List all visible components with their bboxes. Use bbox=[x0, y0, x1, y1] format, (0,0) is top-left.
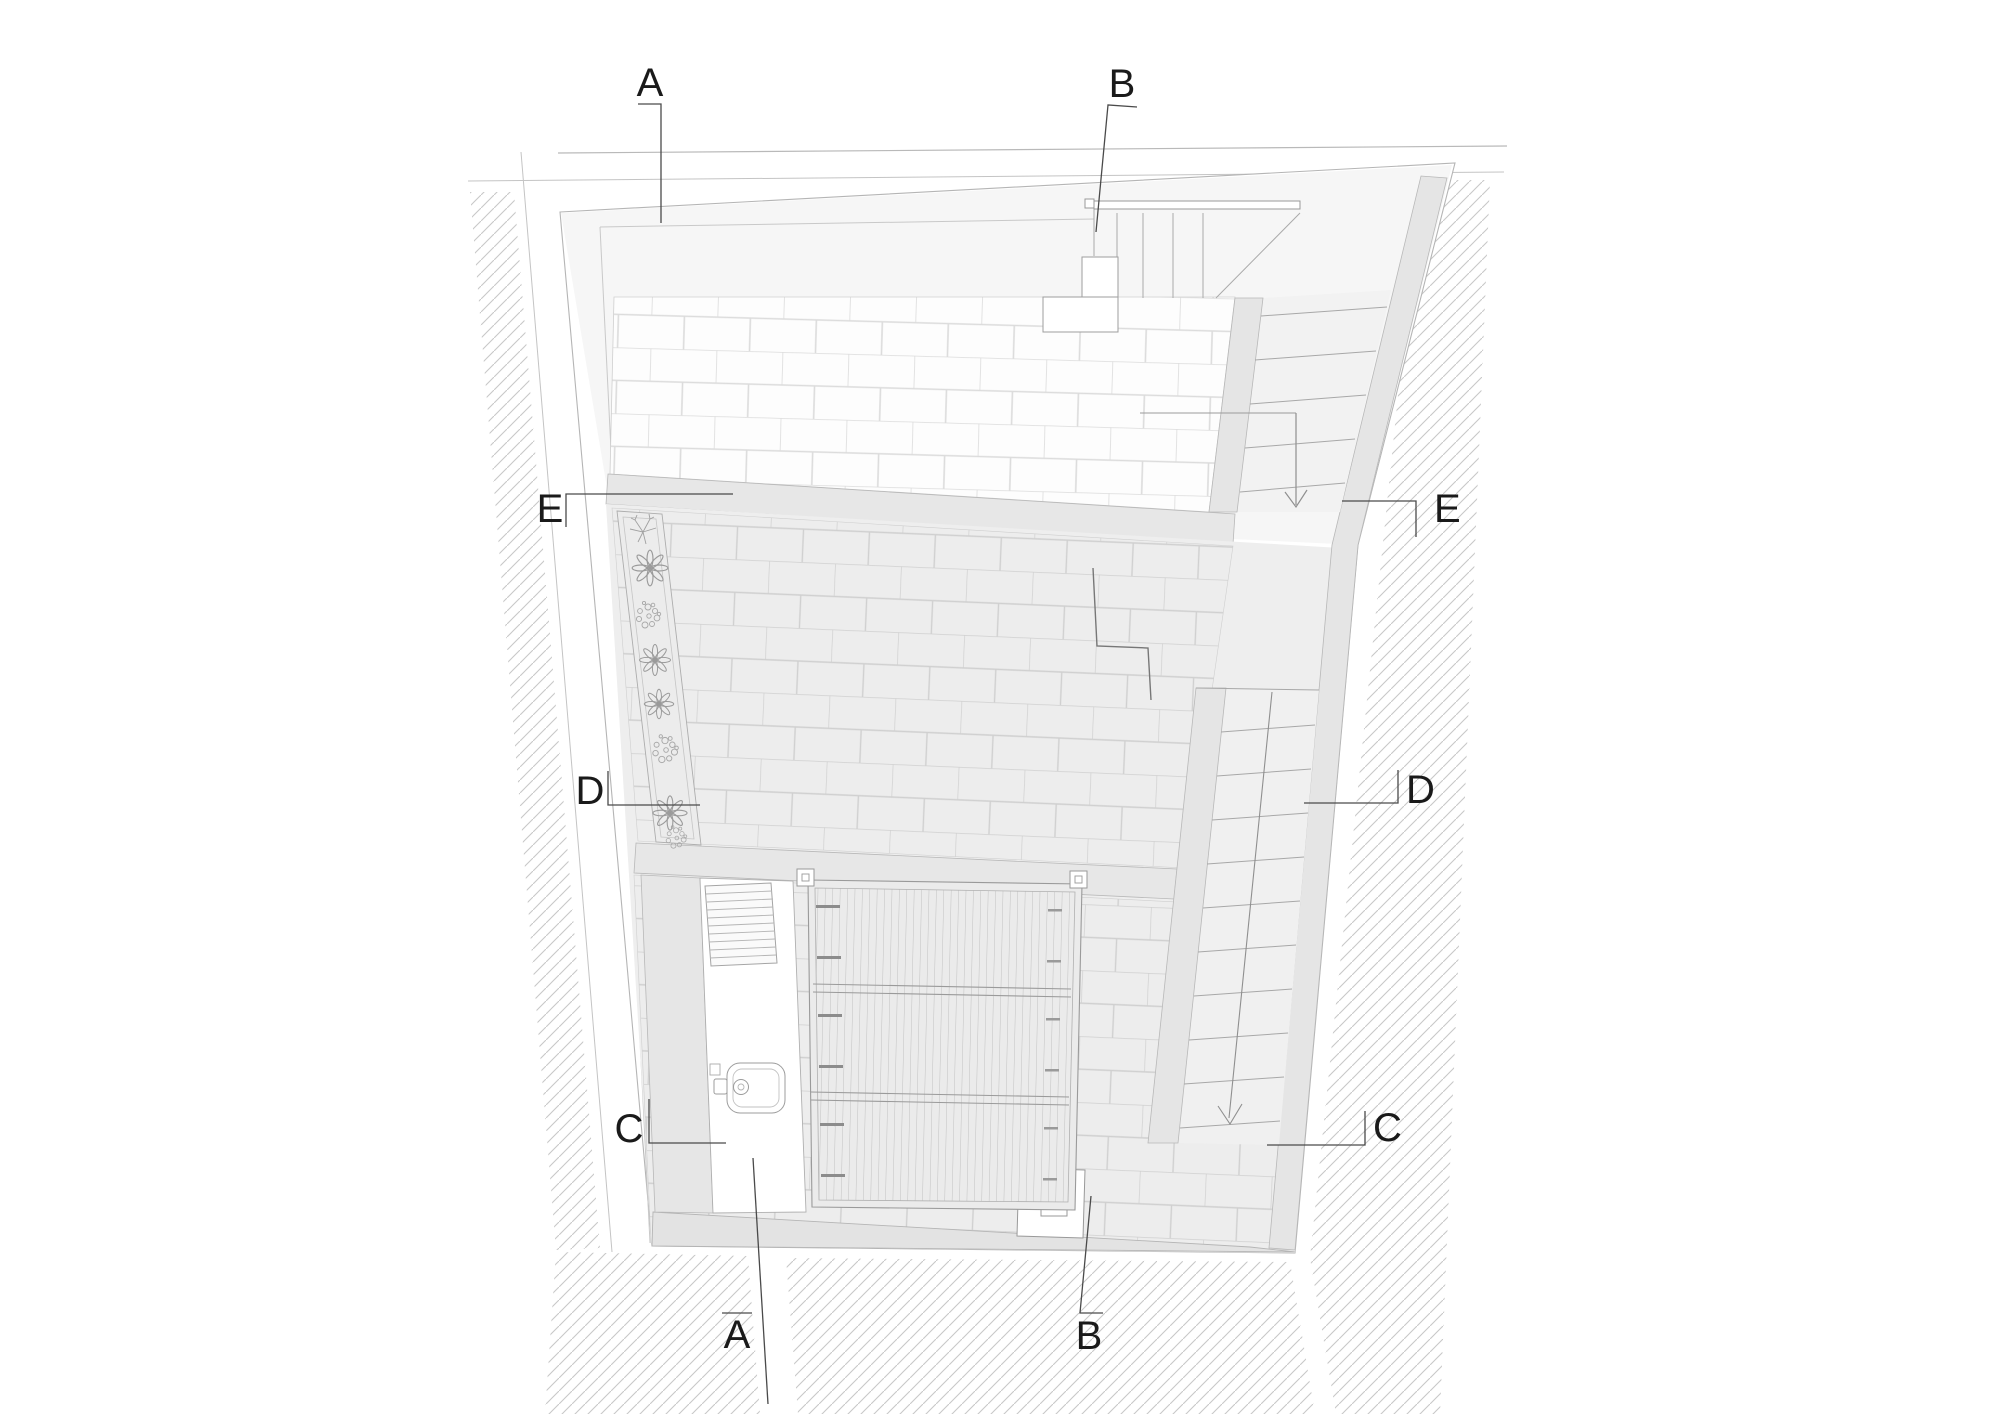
rail-end-post bbox=[1085, 199, 1094, 208]
floor-grate bbox=[705, 883, 777, 966]
section-marker-b-bottom: B bbox=[1076, 1314, 1103, 1358]
architectural-plan-drawing: A B E E D D C C A B bbox=[0, 0, 2000, 1414]
wash-room bbox=[641, 875, 806, 1213]
stair-landing-lower-box bbox=[1043, 297, 1118, 332]
stair-rail-band bbox=[1094, 201, 1300, 209]
section-marker-a-top: A bbox=[637, 61, 664, 105]
section-marker-e-left: E bbox=[537, 487, 564, 531]
section-marker-c-left: C bbox=[615, 1107, 644, 1151]
section-marker-a-bottom: A bbox=[724, 1313, 751, 1357]
leader-a-top bbox=[638, 104, 661, 223]
section-marker-e-right: E bbox=[1434, 487, 1461, 531]
stair-landing-upper-box bbox=[1082, 257, 1118, 297]
skylight-grid bbox=[797, 869, 1087, 1210]
basin-drain bbox=[734, 1080, 749, 1095]
floor-plan-canvas: A B E E D D C C A B bbox=[0, 0, 2000, 1414]
section-marker-d-right: D bbox=[1406, 768, 1435, 812]
site-boundary-line-top bbox=[558, 146, 1507, 153]
section-marker-c-right: C bbox=[1373, 1106, 1402, 1150]
tap-body bbox=[714, 1079, 727, 1094]
tap-valve bbox=[710, 1064, 720, 1075]
section-marker-d-left: D bbox=[576, 769, 605, 813]
section-marker-b-top: B bbox=[1109, 62, 1136, 106]
terrace-2-paving bbox=[612, 508, 1233, 868]
skylight-slats bbox=[815, 888, 1075, 1202]
hatch-bottom-right bbox=[786, 1258, 1315, 1414]
